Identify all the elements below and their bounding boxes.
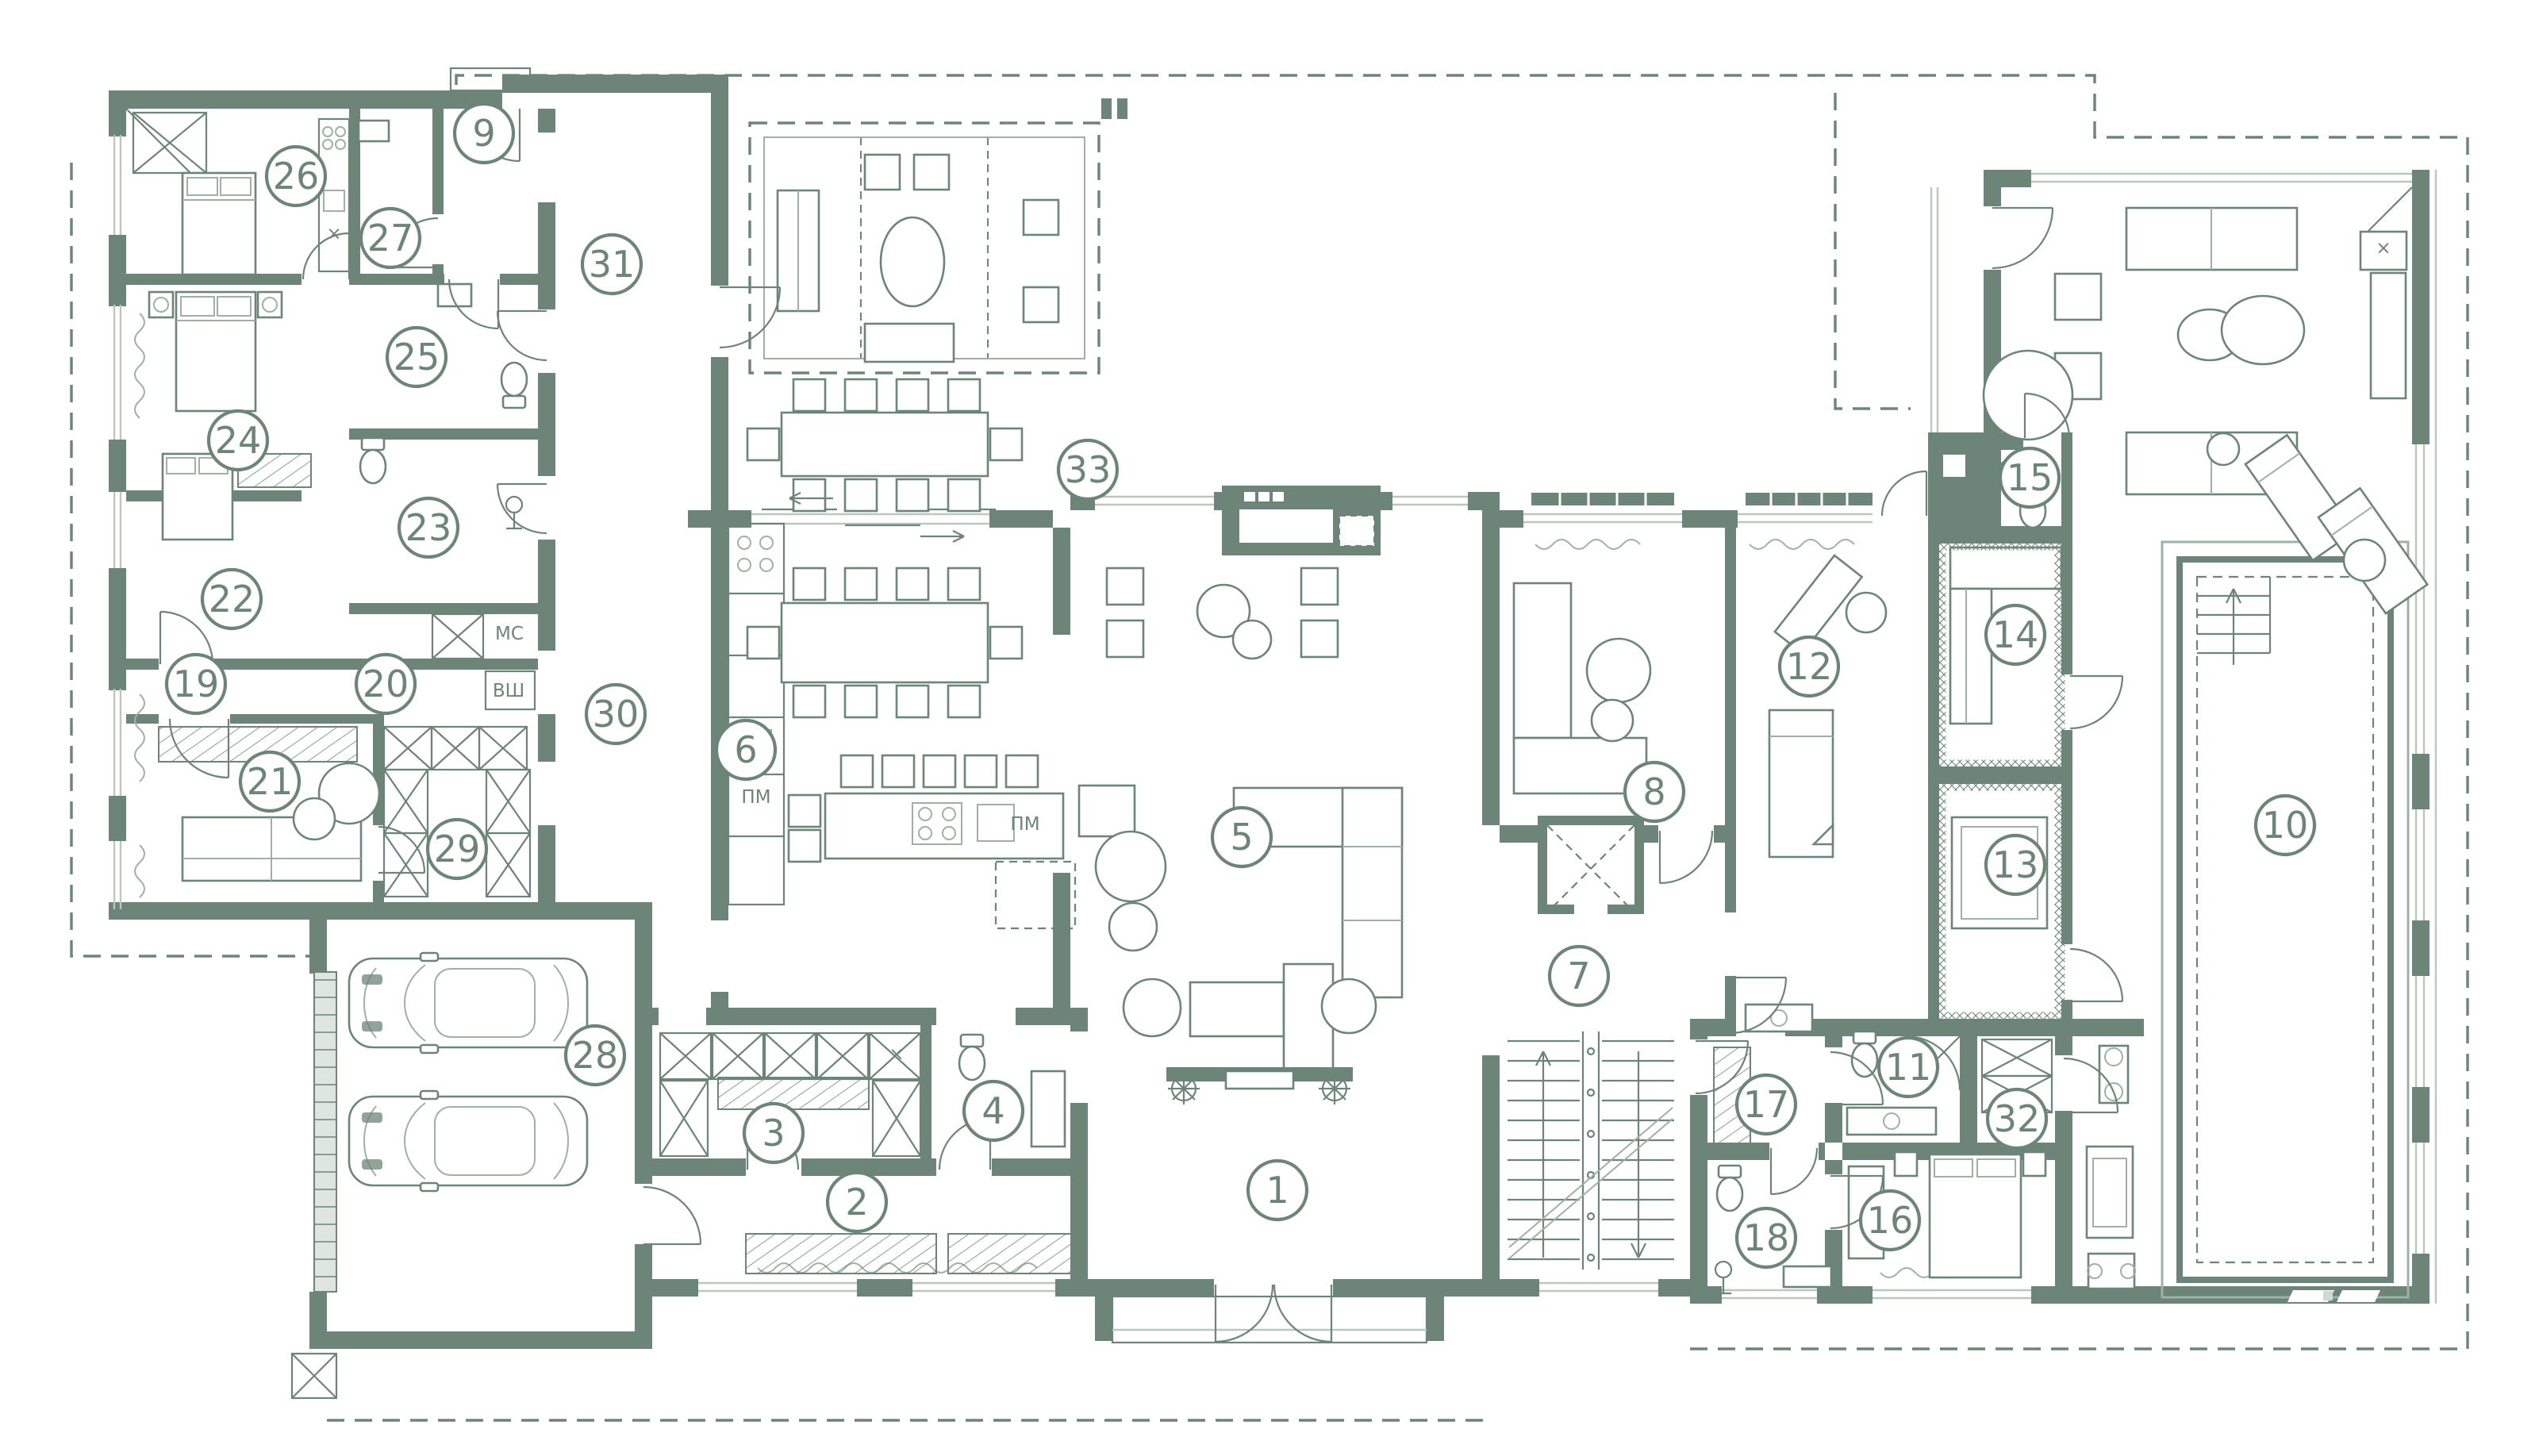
plan-label: ПМ (741, 787, 770, 808)
hall-2-wardrobes (746, 1234, 1075, 1274)
bedroom-24 (149, 292, 282, 411)
pool (2162, 542, 2408, 1302)
svg-text:1: 1 (1266, 1169, 1289, 1212)
svg-text:10: 10 (2262, 804, 2309, 847)
svg-text:31: 31 (589, 243, 636, 286)
svg-text:19: 19 (173, 663, 220, 705)
svg-text:16: 16 (1867, 1199, 1914, 1242)
svg-text:28: 28 (572, 1034, 619, 1077)
svg-text:25: 25 (394, 336, 440, 378)
svg-text:14: 14 (1992, 613, 2039, 656)
room-badge-14: 14 (1986, 605, 2045, 664)
room-badge-28: 28 (566, 1026, 624, 1085)
svg-text:15: 15 (2007, 456, 2053, 499)
room-badge-27: 27 (361, 209, 420, 267)
room-badge-9: 9 (455, 104, 513, 163)
dining-table (747, 568, 1022, 717)
room-badge-10: 10 (2256, 796, 2314, 855)
svg-text:5: 5 (1230, 816, 1253, 859)
room-badge-32: 32 (1988, 1089, 2046, 1148)
room-badge-4: 4 (964, 1081, 1023, 1140)
svg-text:33: 33 (1065, 448, 1112, 491)
svg-text:7: 7 (1567, 955, 1590, 997)
room-badge-5: 5 (1212, 808, 1271, 866)
gym-equipment (2087, 1046, 2135, 1289)
svg-text:21: 21 (247, 760, 294, 803)
svg-text:12: 12 (1786, 645, 1833, 688)
floor-plan: 1234567891011121314151617181920212223242… (0, 0, 2539, 1456)
fireplace (1222, 486, 1381, 555)
room-badge-7: 7 (1550, 947, 1608, 1005)
outdoor-dining-table (747, 379, 1022, 511)
room-badge-18: 18 (1737, 1208, 1796, 1267)
plan-label: × (2376, 238, 2391, 259)
room-badge-8: 8 (1625, 763, 1684, 821)
car-1 (349, 953, 587, 1053)
room-badge-6: 6 (716, 720, 775, 779)
svg-text:29: 29 (434, 828, 481, 870)
svg-text:30: 30 (593, 693, 640, 736)
plan-label: × (326, 224, 341, 244)
svg-text:4: 4 (981, 1089, 1004, 1132)
living-room-5 (1079, 568, 1402, 997)
svg-text:32: 32 (1994, 1097, 2041, 1140)
room-badge-29: 29 (428, 820, 486, 878)
floor-plan-page: 1234567891011121314151617181920212223242… (0, 0, 2539, 1456)
furniture (133, 98, 2427, 1293)
svg-text:6: 6 (734, 728, 757, 771)
room-badge-17: 17 (1737, 1075, 1796, 1134)
room-badge-1: 1 (1248, 1161, 1307, 1220)
elevator (1547, 825, 1634, 912)
room-badge-23: 23 (399, 498, 458, 557)
foyer-1 (1124, 964, 1376, 1104)
room-badge-15: 15 (2000, 448, 2059, 507)
kitchen-island (789, 755, 1075, 928)
room-badge-3: 3 (744, 1104, 803, 1162)
room-badge-31: 31 (582, 235, 641, 294)
svg-text:2: 2 (845, 1181, 868, 1224)
column (292, 1354, 336, 1398)
plan-label: ПМ (1010, 814, 1039, 835)
room-badge-24: 24 (209, 411, 267, 470)
svg-text:23: 23 (405, 506, 452, 549)
room-badge-12: 12 (1780, 637, 1838, 696)
staircase[interactable] (1508, 1031, 1674, 1270)
room-badge-33: 33 (1058, 440, 1117, 499)
svg-text:17: 17 (1743, 1083, 1790, 1126)
room-badge-2: 2 (828, 1173, 886, 1231)
terrace-furniture (764, 137, 1085, 362)
car-2 (349, 1091, 587, 1191)
room-badge-22: 22 (202, 570, 261, 628)
svg-text:26: 26 (273, 155, 320, 198)
svg-text:9: 9 (472, 112, 495, 155)
room-badge-30: 30 (586, 685, 645, 743)
svg-text:3: 3 (762, 1112, 785, 1154)
room-badge-13: 13 (1986, 836, 2045, 894)
plan-label: ВШ (493, 681, 524, 701)
study-8 (1514, 583, 1650, 793)
svg-text:20: 20 (363, 663, 409, 705)
kitchen-cabinets (728, 524, 784, 905)
room-badge-16: 16 (1861, 1191, 1919, 1250)
svg-text:11: 11 (1885, 1046, 1932, 1089)
closet-3-rack (718, 1078, 869, 1109)
svg-text:24: 24 (215, 419, 262, 462)
svg-text:13: 13 (1992, 843, 2039, 886)
room-badge-26: 26 (267, 147, 325, 206)
room-badge-11: 11 (1879, 1038, 1938, 1097)
room-badge-25: 25 (387, 328, 446, 386)
svg-text:22: 22 (209, 578, 255, 620)
svg-text:27: 27 (367, 217, 414, 259)
plan-label: МС (495, 624, 524, 644)
room-badge-21: 21 (240, 752, 299, 811)
plan-label: × (889, 1044, 904, 1065)
svg-text:8: 8 (1642, 770, 1665, 813)
garage-door (314, 972, 336, 1292)
room-badge-20: 20 (356, 655, 415, 713)
room-badge-19: 19 (167, 655, 225, 713)
bedroom-12 (1746, 555, 1886, 1031)
svg-text:18: 18 (1743, 1216, 1790, 1259)
